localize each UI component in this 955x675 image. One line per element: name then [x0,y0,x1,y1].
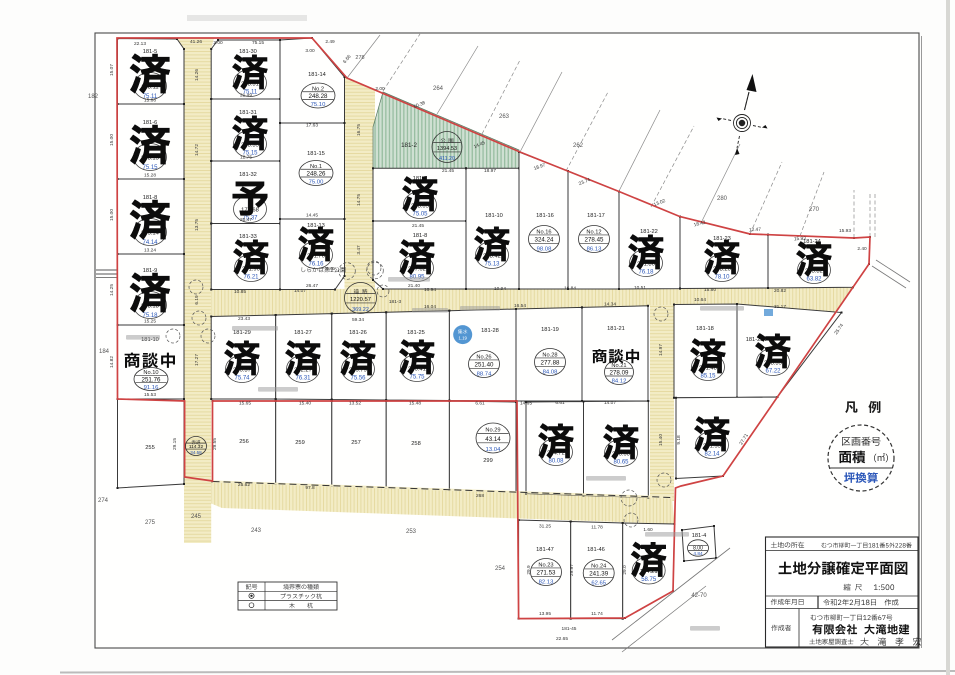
svg-text:181-14: 181-14 [308,72,326,78]
svg-text:13.95: 13.95 [539,611,551,617]
svg-text:255: 255 [145,445,155,451]
svg-text:4.84: 4.84 [693,551,703,557]
svg-text:No.23: No.23 [538,562,553,568]
svg-text:181-15: 181-15 [307,151,325,157]
svg-text:15.00: 15.00 [109,209,115,221]
svg-text:299: 299 [483,458,493,464]
svg-text:14.07: 14.07 [294,288,306,294]
svg-text:275: 275 [145,520,156,526]
svg-text:67.22: 67.22 [765,369,781,375]
svg-text:59.34: 59.34 [352,317,364,323]
svg-text:75.05: 75.05 [412,212,428,218]
svg-text:29.55: 29.55 [212,438,218,450]
svg-text:22.13: 22.13 [134,41,146,47]
svg-text:243: 243 [251,528,262,534]
svg-text:21.45: 21.45 [442,168,454,174]
svg-text:75.74: 75.74 [234,376,250,382]
svg-text:80.65: 80.65 [613,460,629,466]
svg-text:181-19: 181-19 [541,327,559,333]
svg-text:21.40: 21.40 [408,283,420,289]
svg-text:263: 263 [499,114,510,120]
svg-text:411.20: 411.20 [439,156,455,162]
svg-text:114.32: 114.32 [189,444,204,450]
svg-text:3.40: 3.40 [325,266,335,272]
svg-text:2.00: 2.00 [213,40,223,46]
svg-text:76.31: 76.31 [295,376,311,382]
svg-text:280: 280 [717,196,728,202]
svg-text:No.10: No.10 [143,370,158,376]
svg-text:14.26: 14.26 [194,69,200,81]
svg-text:268: 268 [476,493,484,499]
svg-text:2.40: 2.40 [857,246,867,252]
svg-text:No.29: No.29 [485,428,500,434]
svg-text:No.21: No.21 [611,363,626,369]
svg-text:12.47: 12.47 [749,227,762,234]
svg-text:80.08: 80.08 [548,459,564,465]
svg-text:251.40: 251.40 [475,362,494,369]
svg-text:75.10: 75.10 [311,102,326,108]
svg-text:13.75: 13.75 [194,219,200,231]
svg-text:82.13: 82.13 [539,579,554,585]
svg-text:15.48: 15.48 [409,401,421,407]
svg-text:184: 184 [99,349,110,355]
svg-text:75.56: 75.56 [350,376,366,382]
svg-text:14.82: 14.82 [109,356,115,368]
svg-text:181-8: 181-8 [413,233,428,239]
svg-text:25.62: 25.62 [238,482,250,488]
svg-text:12.75: 12.75 [240,155,252,161]
svg-text:15.80: 15.80 [704,287,716,293]
svg-text:21.45: 21.45 [412,223,424,229]
svg-text:15.40: 15.40 [299,401,311,407]
svg-text:76.16: 76.16 [308,262,324,268]
svg-text:15.25: 15.25 [144,319,156,325]
svg-text:181-3: 181-3 [389,299,402,305]
svg-text:75.00: 75.00 [309,180,324,186]
svg-text:75.13: 75.13 [484,262,500,268]
svg-text:76.21: 76.21 [243,275,259,281]
svg-text:369.22: 369.22 [352,307,369,313]
svg-text:181-21: 181-21 [607,326,625,332]
svg-text:181-32: 181-32 [239,172,257,178]
svg-text:11.78: 11.78 [591,525,603,531]
svg-text:13.04: 13.04 [486,447,501,453]
svg-text:14.75: 14.75 [356,194,362,206]
svg-text:324.24: 324.24 [535,237,554,244]
svg-text:278.09: 278.09 [610,370,629,377]
svg-text:34.58: 34.58 [190,450,202,455]
svg-text:78.10: 78.10 [714,275,730,281]
svg-text:251.76: 251.76 [142,376,161,383]
svg-text:15.93: 15.93 [794,236,807,243]
svg-text:88.74: 88.74 [477,371,492,377]
svg-text:85.15: 85.15 [700,374,716,380]
svg-text:10.85: 10.85 [234,289,246,295]
svg-text:274: 274 [98,498,109,504]
svg-text:182: 182 [88,94,99,100]
svg-text:245: 245 [191,514,202,520]
svg-text:82.14: 82.14 [704,452,720,458]
svg-text:1.19: 1.19 [459,336,468,341]
svg-text:75.75: 75.75 [409,375,425,381]
svg-text:13.52: 13.52 [349,401,361,407]
svg-text:98.08: 98.08 [537,246,552,252]
svg-text:278.45: 278.45 [585,237,604,244]
svg-text:181-45: 181-45 [562,626,577,632]
svg-text:278: 278 [355,55,364,61]
svg-text:181-25: 181-25 [407,330,425,336]
svg-text:10.64: 10.64 [694,297,706,303]
svg-text:13.24: 13.24 [144,248,156,254]
svg-text:14.97: 14.97 [658,344,664,356]
svg-text:42-70: 42-70 [691,593,707,599]
svg-text:43.14: 43.14 [485,436,501,443]
svg-text:256: 256 [239,439,249,445]
svg-text:9.18: 9.18 [676,435,682,445]
svg-text:6.19: 6.19 [194,295,200,305]
svg-text:270: 270 [809,207,820,213]
svg-text:14.45: 14.45 [306,213,318,219]
svg-text:181-46: 181-46 [587,547,605,553]
svg-text:97.8: 97.8 [305,485,315,491]
svg-text:No.16: No.16 [536,229,551,235]
svg-text:258: 258 [411,441,421,447]
svg-text:18.97: 18.97 [484,168,496,174]
svg-text:181-2: 181-2 [401,142,417,149]
svg-text:181-17: 181-17 [587,213,605,219]
svg-text:10.51: 10.51 [634,285,646,291]
svg-text:181-30: 181-30 [239,49,257,55]
svg-text:181-16: 181-16 [536,213,554,219]
svg-text:3.47: 3.47 [356,245,362,255]
svg-text:41.26: 41.26 [190,39,202,45]
svg-text:15.00: 15.00 [109,134,115,146]
svg-text:17.63: 17.63 [306,123,318,129]
svg-text:181-27: 181-27 [294,330,312,336]
svg-text:No.12: No.12 [586,229,601,235]
svg-text:1394.53: 1394.53 [437,146,457,152]
svg-text:181-29: 181-29 [233,330,251,336]
svg-text:No.26: No.26 [476,354,491,360]
svg-text:11.74: 11.74 [591,611,603,617]
svg-text:63.82: 63.82 [806,277,822,283]
svg-text:181-18: 181-18 [696,326,714,332]
svg-text:15.65: 15.65 [239,401,251,407]
svg-text:16.84: 16.84 [564,286,576,292]
svg-text:181-10: 181-10 [485,213,503,219]
svg-text:181-31: 181-31 [239,110,257,116]
svg-text:15.53: 15.53 [144,392,156,398]
svg-text:181-26: 181-26 [349,330,367,336]
svg-text:6.61: 6.61 [555,400,565,406]
svg-text:259: 259 [295,440,305,446]
svg-text:8.00: 8.00 [693,546,703,552]
svg-text:15.93: 15.93 [839,228,851,234]
svg-text:23.43: 23.43 [238,316,250,322]
svg-text:264: 264 [433,86,444,92]
svg-text:257: 257 [351,440,361,446]
svg-text:2.49: 2.49 [325,39,335,45]
svg-text:21.49: 21.49 [240,93,252,99]
svg-text:15.40: 15.40 [658,434,664,446]
svg-text:62.65: 62.65 [591,580,606,586]
svg-text:10.94: 10.94 [494,286,506,292]
svg-text:15.28: 15.28 [144,173,156,179]
svg-text:31.17: 31.17 [774,304,786,310]
svg-text:84.12: 84.12 [612,379,627,385]
svg-text:181-4: 181-4 [692,533,707,539]
svg-text:20.82: 20.82 [774,288,786,294]
svg-text:No.24: No.24 [591,563,606,569]
svg-text:14.72: 14.72 [194,144,200,156]
svg-text:181-22: 181-22 [640,229,658,235]
svg-text:86.13: 86.13 [587,246,602,252]
svg-text:26.47: 26.47 [306,283,318,289]
svg-text:16.75: 16.75 [356,124,362,136]
svg-text:29.97: 29.97 [569,564,575,576]
svg-text:No.1: No.1 [310,164,322,170]
svg-text:3.00: 3.00 [305,48,315,54]
svg-text:20.47: 20.47 [240,217,252,223]
svg-text:58.75: 58.75 [641,577,657,583]
svg-text:271.53: 271.53 [537,570,556,577]
svg-text:No.28: No.28 [542,352,557,358]
svg-text:181-28: 181-28 [481,328,499,334]
svg-text:91.16: 91.16 [144,385,159,391]
svg-text:241.39: 241.39 [589,571,608,578]
svg-text:22.65: 22.65 [556,636,568,642]
svg-text:14.07: 14.07 [604,400,616,406]
svg-text:14.34: 14.34 [604,302,616,308]
svg-text:6.61: 6.61 [475,401,485,407]
svg-text:15.88: 15.88 [144,98,156,104]
svg-text:248.28: 248.28 [309,93,328,100]
svg-text:29.9: 29.9 [526,565,532,575]
svg-text:181-33: 181-33 [239,234,257,240]
svg-text:14.65: 14.65 [520,401,532,407]
svg-text:2.00: 2.00 [375,86,385,92]
svg-text:248.26: 248.26 [307,171,326,178]
svg-text:75.15: 75.15 [142,165,158,171]
svg-text:29.15: 29.15 [172,438,178,450]
svg-text:14.25: 14.25 [109,284,115,296]
svg-text:No.2: No.2 [312,86,324,92]
svg-text:181-47: 181-47 [536,547,554,553]
svg-text:16.94: 16.94 [424,287,436,293]
svg-text:76.18: 76.18 [638,270,654,276]
svg-text:262: 262 [573,143,584,149]
svg-text:29.0: 29.0 [622,565,628,575]
svg-text:16.54: 16.54 [514,303,526,309]
svg-text:75.15: 75.15 [252,40,264,46]
svg-text:74.14: 74.14 [142,240,158,246]
svg-text:15.07: 15.07 [109,64,115,76]
svg-text:1220.57: 1220.57 [350,297,371,303]
svg-text:84.08: 84.08 [543,369,558,375]
svg-text:75.18: 75.18 [142,313,158,319]
svg-text:254: 254 [495,566,506,572]
svg-text:253: 253 [406,529,417,535]
svg-text:277.88: 277.88 [541,360,560,367]
svg-text:17.27: 17.27 [194,354,200,366]
svg-text:31.25: 31.25 [539,524,551,530]
